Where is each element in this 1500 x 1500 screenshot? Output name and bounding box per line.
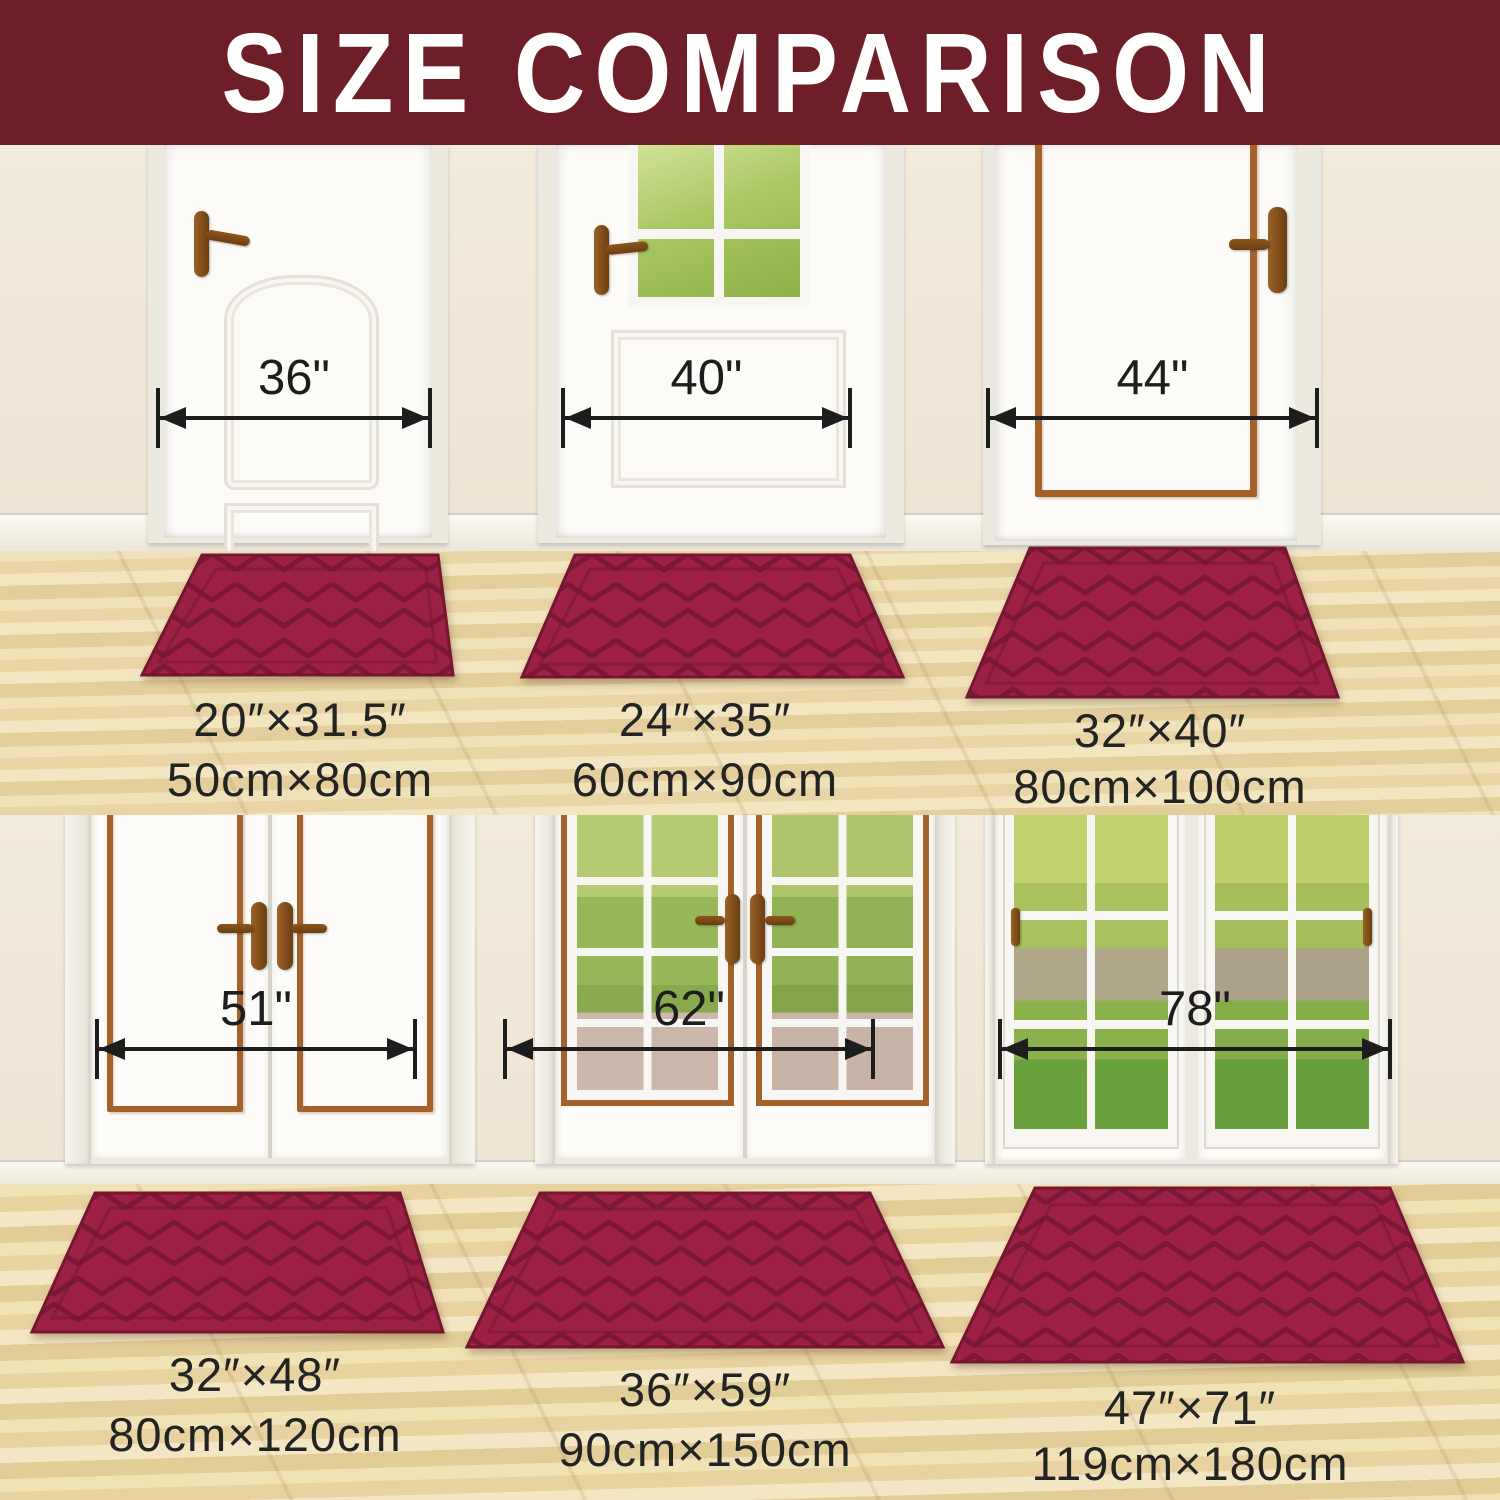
doormat-24x35 (520, 552, 905, 680)
door-handle-lever (205, 229, 250, 246)
door-handle (194, 211, 209, 277)
measure-line (563, 416, 850, 420)
scene-double-doors: 51" 62" 78" (0, 812, 1500, 1500)
arrowhead-left-icon (160, 407, 186, 429)
door-handle (725, 894, 740, 964)
doormat-32x48 (30, 1190, 445, 1335)
door-jamb (65, 812, 91, 1164)
mat-size-inches: 36″×59″ (505, 1360, 905, 1420)
measure-tick (1388, 1019, 1392, 1079)
arrowhead-right-icon (845, 1038, 871, 1060)
door-handle-lever (291, 924, 327, 933)
mat-size-cm: 90cm×150cm (505, 1420, 905, 1480)
width-measure-36: 36" (158, 350, 430, 420)
arrowhead-right-icon (1289, 407, 1315, 429)
banner-title: SIZE COMPARISON (221, 8, 1278, 138)
door-44in (983, 145, 1321, 545)
door-trim (1035, 145, 1257, 497)
door-slab (164, 145, 432, 538)
door-window (628, 145, 810, 307)
width-measure-62: 62" (505, 981, 873, 1051)
doormat-32x40 (965, 545, 1340, 700)
mat-size-cm: 50cm×80cm (110, 750, 490, 810)
door-handle (1363, 908, 1372, 946)
measure-label: 78" (1000, 981, 1390, 1037)
door-window (567, 812, 728, 1100)
width-measure-78: 78" (1000, 981, 1390, 1051)
scene-single-doors: 36" 40" 44" (0, 145, 1500, 815)
door-window (1206, 812, 1378, 1147)
door-handle-lever (1229, 239, 1269, 250)
size-comparison-image: SIZE COMPARISON (0, 0, 1500, 1500)
door-slab (556, 145, 886, 538)
width-measure-51: 51" (97, 981, 415, 1051)
doormat-20x31 (140, 552, 455, 678)
measure-label: 62" (505, 981, 873, 1037)
mat-size-inches: 24″×35″ (515, 690, 895, 750)
doormat-47x71 (950, 1185, 1465, 1365)
door-handle (1268, 207, 1287, 293)
measure-tick (428, 388, 432, 448)
door-window (762, 812, 923, 1100)
mat-size-cm: 119cm×180cm (970, 1436, 1410, 1492)
mat-size-label: 20″×31.5″ 50cm×80cm (110, 690, 490, 809)
door-jamb (935, 812, 955, 1164)
measure-line (158, 416, 430, 420)
door-trim (107, 812, 243, 1112)
measure-tick (848, 388, 852, 448)
arrowhead-left-icon (1002, 1038, 1028, 1060)
mat-size-inches: 32″×48″ (55, 1345, 455, 1405)
mat-size-cm: 80cm×100cm (950, 759, 1370, 815)
door-handle-lever (695, 916, 725, 925)
door-handle (1011, 908, 1020, 946)
arrowhead-left-icon (99, 1038, 125, 1060)
arrowhead-right-icon (387, 1038, 413, 1060)
door-handle-lever (217, 924, 253, 933)
door-handle (750, 894, 765, 964)
door-40in (538, 145, 904, 543)
mat-size-inches: 20″×31.5″ (110, 690, 490, 750)
measure-line (988, 416, 1317, 420)
door-panel-lower (224, 503, 379, 558)
doormat-36x59 (465, 1190, 945, 1350)
door-handle (594, 225, 609, 295)
measure-line (1000, 1047, 1390, 1051)
mat-size-label: 47″×71″ 119cm×180cm (970, 1380, 1410, 1493)
arrowhead-left-icon (507, 1038, 533, 1060)
mat-size-cm: 60cm×90cm (515, 750, 895, 810)
door-jamb (985, 812, 995, 1164)
mat-size-label: 32″×40″ 80cm×100cm (950, 703, 1370, 815)
arrowhead-left-icon (565, 407, 591, 429)
door-window (1005, 812, 1177, 1147)
door-slab (995, 145, 1297, 541)
arrowhead-right-icon (1362, 1038, 1388, 1060)
measure-tick (871, 1019, 875, 1079)
measure-label: 36" (158, 350, 430, 406)
arrowhead-left-icon (990, 407, 1016, 429)
door-handle-lever (765, 916, 795, 925)
measure-tick (1315, 388, 1319, 448)
mat-size-label: 36″×59″ 90cm×150cm (505, 1360, 905, 1479)
mat-size-label: 32″×48″ 80cm×120cm (55, 1345, 455, 1464)
arrowhead-right-icon (402, 407, 428, 429)
door-36in (148, 145, 448, 543)
mat-size-inches: 47″×71″ (970, 1380, 1410, 1436)
measure-tick (413, 1019, 417, 1079)
arrowhead-right-icon (822, 407, 848, 429)
measure-label: 44" (988, 350, 1317, 406)
width-measure-40: 40" (563, 350, 850, 420)
measure-line (97, 1047, 415, 1051)
mat-size-label: 24″×35″ 60cm×90cm (515, 690, 895, 809)
measure-label: 51" (97, 981, 415, 1037)
size-comparison-banner: SIZE COMPARISON (0, 0, 1500, 145)
measure-label: 40" (563, 350, 850, 406)
width-measure-44: 44" (988, 350, 1317, 420)
door-handle (277, 902, 293, 970)
mat-size-inches: 32″×40″ (950, 703, 1370, 759)
door-handle (251, 902, 267, 970)
mat-size-cm: 80cm×120cm (55, 1405, 455, 1465)
measure-line (505, 1047, 873, 1051)
door-jamb (449, 812, 475, 1164)
